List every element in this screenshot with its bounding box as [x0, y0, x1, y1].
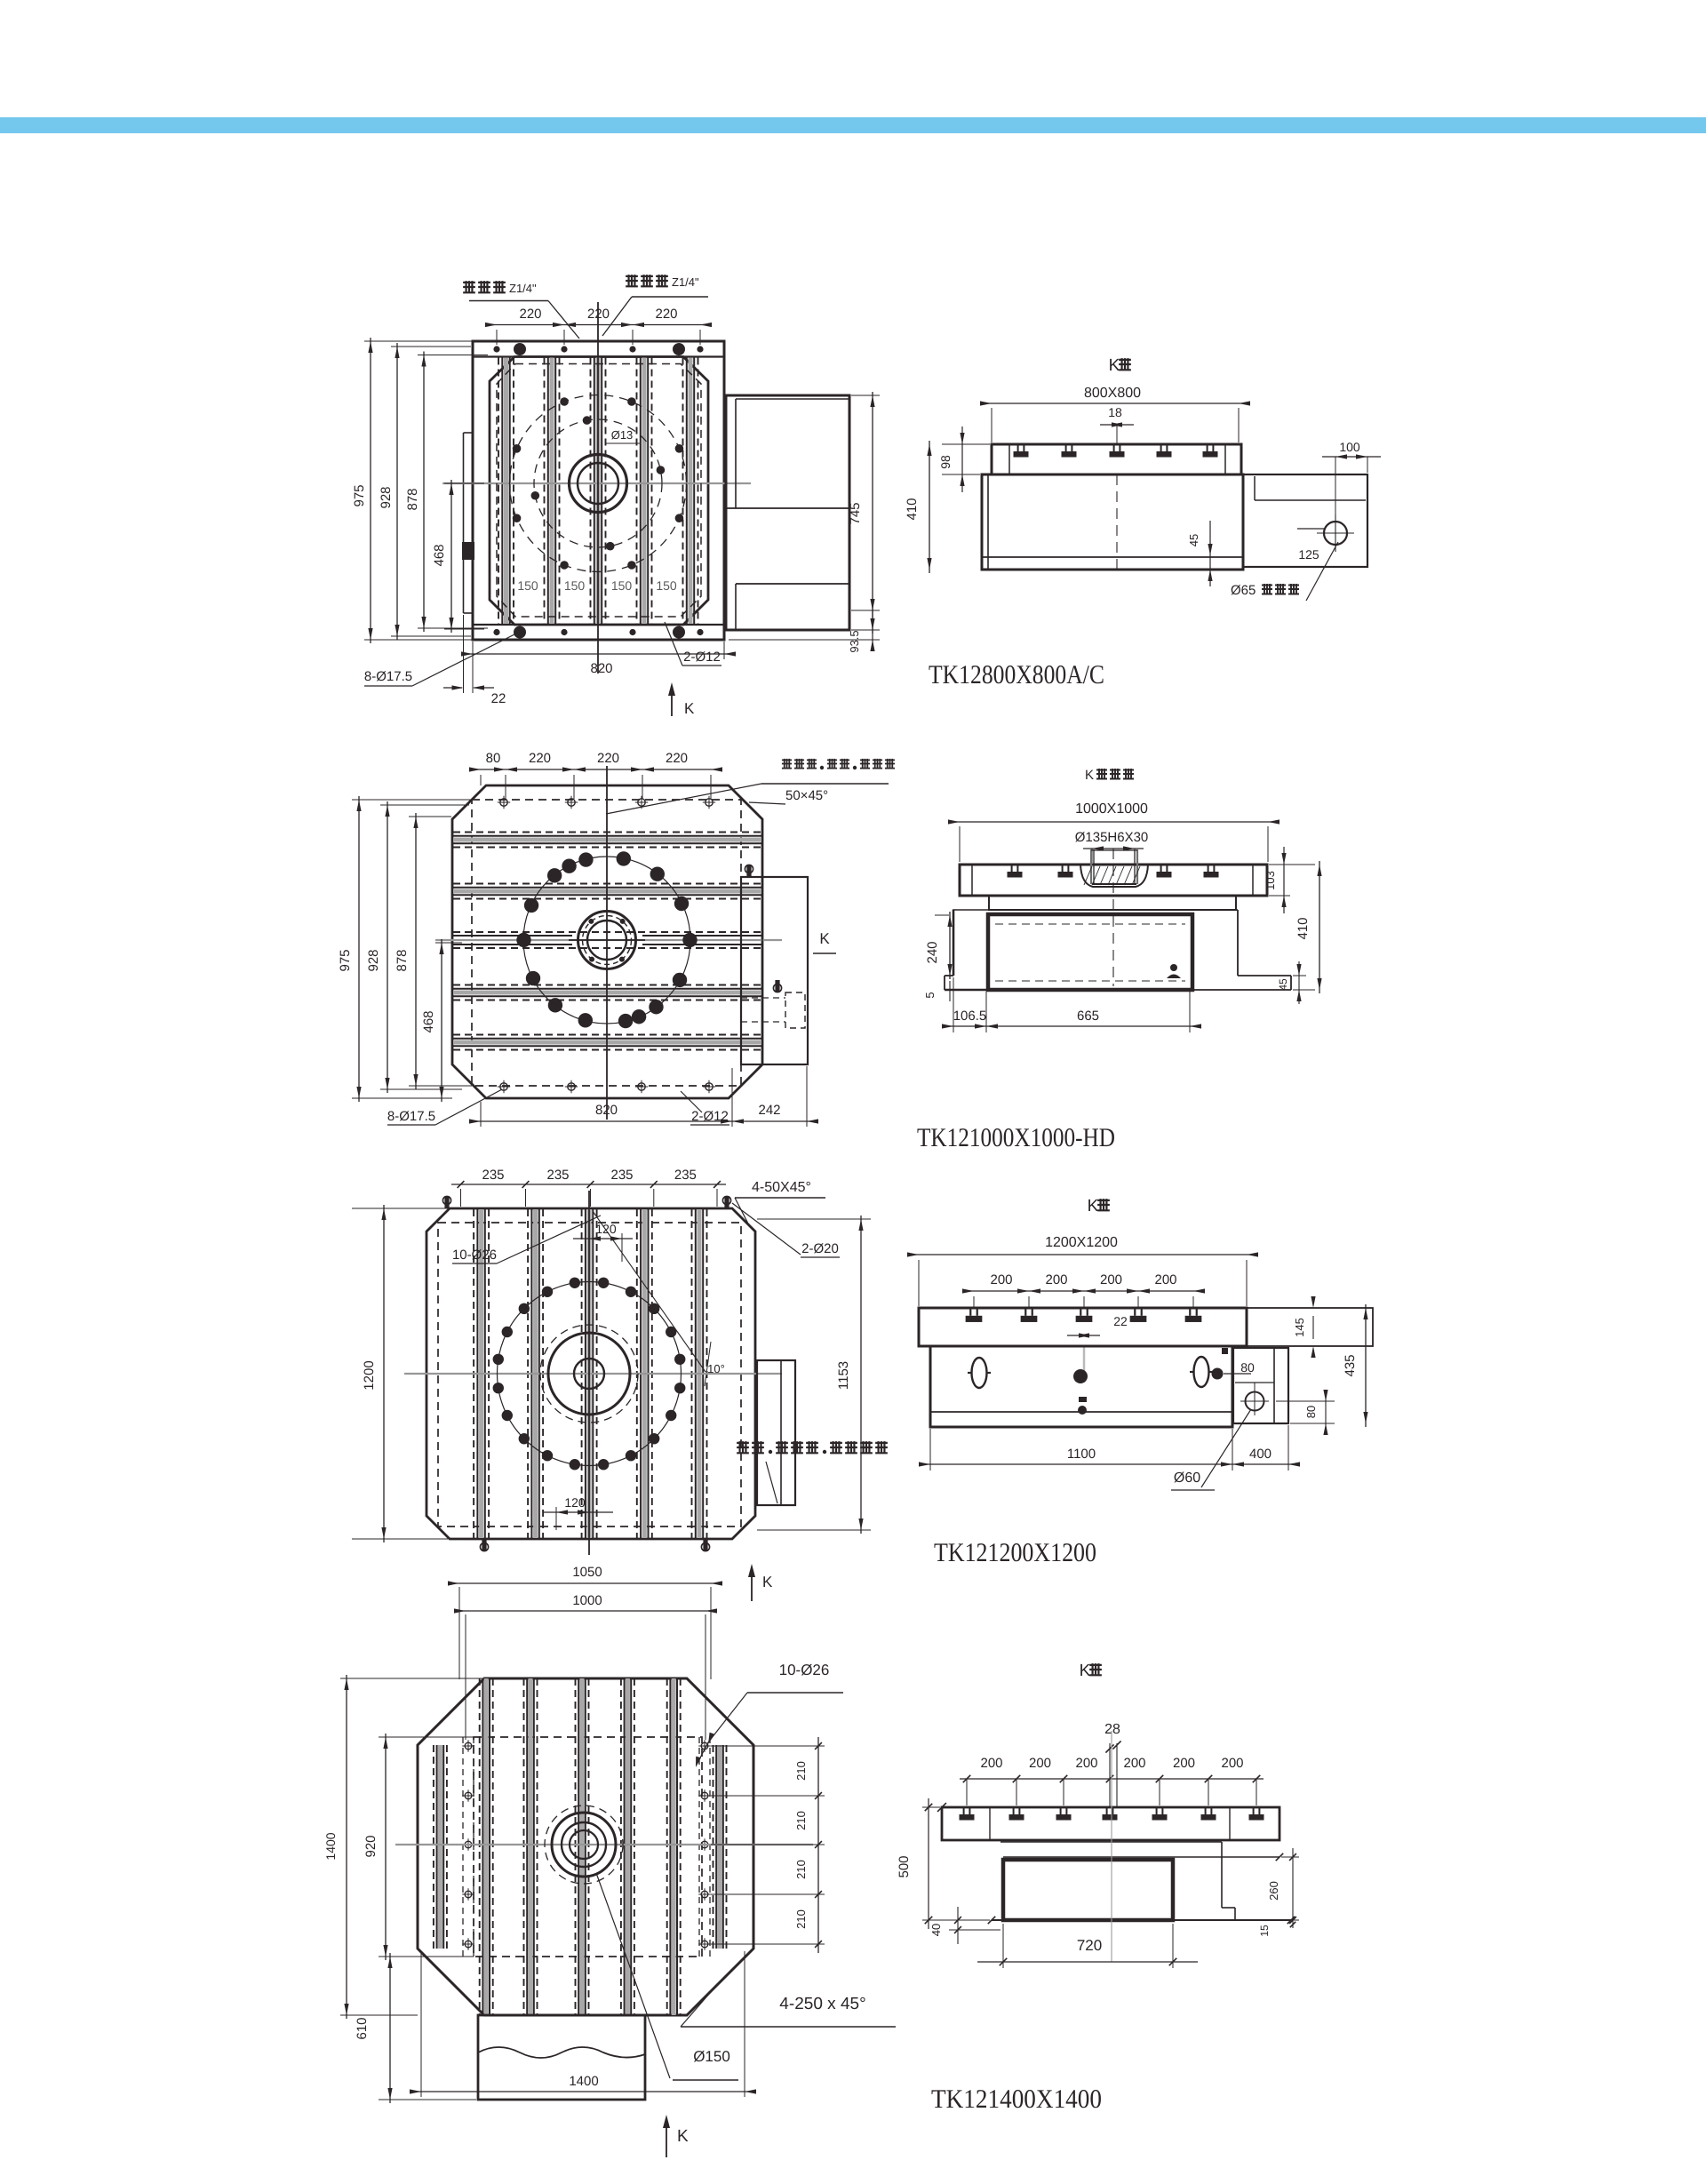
svg-text:K: K — [1085, 768, 1094, 783]
svg-text:200: 200 — [990, 1272, 1012, 1287]
svg-text:Ø135H6X30: Ø135H6X30 — [1075, 830, 1149, 845]
svg-text:Z1/4": Z1/4" — [672, 275, 699, 289]
svg-text:K: K — [762, 1574, 773, 1590]
svg-text:15: 15 — [1258, 1925, 1271, 1937]
svg-text:1000: 1000 — [572, 1593, 602, 1608]
svg-text:TK12800X800A/C: TK12800X800A/C — [929, 660, 1104, 689]
svg-text:Ø65: Ø65 — [1231, 583, 1256, 598]
svg-text:468: 468 — [421, 1010, 436, 1032]
svg-text:28: 28 — [1104, 1722, 1120, 1737]
svg-text:400: 400 — [1249, 1447, 1272, 1462]
svg-text:745: 745 — [848, 502, 863, 524]
svg-text:120: 120 — [564, 1495, 586, 1510]
svg-text:975: 975 — [352, 484, 367, 506]
svg-text:106.5: 106.5 — [953, 1008, 987, 1024]
svg-text:200: 200 — [1154, 1272, 1176, 1287]
svg-text:235: 235 — [546, 1168, 569, 1183]
svg-text:210: 210 — [794, 1761, 808, 1781]
svg-text:200: 200 — [980, 1756, 1002, 1771]
svg-text:K: K — [1109, 356, 1120, 375]
svg-text:720: 720 — [1077, 1937, 1102, 1954]
svg-text:1200X1200: 1200X1200 — [1045, 1235, 1118, 1250]
svg-text:10-Ø26: 10-Ø26 — [452, 1247, 497, 1263]
svg-text:80: 80 — [1240, 1360, 1255, 1375]
svg-text:Ø150: Ø150 — [693, 2048, 730, 2065]
svg-text:260: 260 — [1267, 1881, 1280, 1901]
svg-text:220: 220 — [519, 307, 541, 322]
svg-text:1200: 1200 — [362, 1360, 377, 1390]
svg-text:1400: 1400 — [569, 2074, 598, 2089]
svg-text:210: 210 — [794, 1860, 808, 1879]
svg-text:10-Ø26: 10-Ø26 — [779, 1662, 830, 1678]
svg-text:1000X1000: 1000X1000 — [1075, 801, 1148, 817]
svg-text:1050: 1050 — [572, 1565, 602, 1580]
svg-text:22: 22 — [491, 691, 506, 706]
svg-text:210: 210 — [794, 1909, 808, 1929]
svg-text:TK121400X1400: TK121400X1400 — [931, 2084, 1102, 2114]
svg-text:235: 235 — [482, 1168, 504, 1183]
svg-text:928: 928 — [379, 486, 394, 508]
svg-text:22: 22 — [1113, 1314, 1128, 1328]
svg-text:235: 235 — [610, 1168, 633, 1183]
svg-text:610: 610 — [355, 2017, 370, 2039]
svg-text:45: 45 — [1187, 534, 1200, 546]
svg-text:2-Ø20: 2-Ø20 — [801, 1241, 839, 1256]
svg-text:K: K — [684, 700, 695, 717]
svg-text:K: K — [1088, 1197, 1099, 1216]
svg-text:200: 200 — [1123, 1756, 1145, 1771]
svg-text:435: 435 — [1343, 1354, 1358, 1376]
svg-text:2-Ø12: 2-Ø12 — [683, 650, 721, 665]
svg-text:1400: 1400 — [323, 1832, 338, 1860]
svg-text:103: 103 — [1264, 871, 1277, 890]
svg-text:150: 150 — [611, 578, 633, 593]
svg-text:K: K — [819, 930, 830, 947]
svg-text:8-Ø17.5: 8-Ø17.5 — [364, 669, 412, 684]
svg-text:975: 975 — [338, 949, 353, 971]
svg-text:220: 220 — [655, 307, 677, 322]
svg-text:K: K — [677, 2127, 689, 2146]
svg-text:220: 220 — [666, 751, 688, 766]
svg-text:145: 145 — [1293, 1318, 1306, 1337]
svg-text:410: 410 — [905, 498, 920, 520]
svg-text:100: 100 — [1339, 440, 1360, 454]
svg-text:45: 45 — [1277, 978, 1289, 991]
svg-text:820: 820 — [595, 1103, 618, 1118]
svg-text:200: 200 — [1173, 1756, 1195, 1771]
svg-text:98: 98 — [938, 455, 953, 469]
svg-text:125: 125 — [1298, 547, 1319, 562]
svg-text:1153: 1153 — [836, 1361, 851, 1390]
svg-text:150: 150 — [564, 578, 586, 593]
svg-text:5: 5 — [923, 992, 937, 998]
svg-text:220: 220 — [529, 751, 551, 766]
svg-text:80: 80 — [486, 751, 501, 766]
svg-text:210: 210 — [794, 1811, 808, 1830]
svg-text:242: 242 — [758, 1103, 780, 1118]
svg-text:220: 220 — [597, 751, 619, 766]
svg-text:TK121000X1000-HD: TK121000X1000-HD — [917, 1123, 1115, 1152]
svg-text:80: 80 — [1304, 1406, 1318, 1418]
svg-text:500: 500 — [897, 1855, 912, 1877]
svg-text:93.5: 93.5 — [848, 630, 861, 652]
svg-text:Ø13: Ø13 — [611, 428, 634, 442]
svg-text:820: 820 — [590, 661, 612, 676]
svg-text:235: 235 — [674, 1168, 697, 1183]
svg-text:878: 878 — [395, 949, 410, 971]
svg-text:Z1/4": Z1/4" — [509, 282, 537, 295]
svg-text:200: 200 — [1029, 1756, 1051, 1771]
svg-text:120: 120 — [595, 1222, 617, 1236]
svg-text:150: 150 — [517, 578, 538, 593]
svg-text:4-250 x 45°: 4-250 x 45° — [779, 1995, 865, 2013]
svg-text:240: 240 — [925, 941, 940, 963]
svg-text:665: 665 — [1077, 1008, 1099, 1024]
svg-text:4-50X45°: 4-50X45° — [752, 1180, 811, 1195]
svg-text:50×45°: 50×45° — [785, 788, 828, 803]
svg-text:150: 150 — [656, 578, 677, 593]
svg-text:800X800: 800X800 — [1084, 386, 1141, 401]
svg-text:878: 878 — [405, 488, 420, 510]
svg-text:200: 200 — [1221, 1756, 1243, 1771]
svg-text:220: 220 — [587, 307, 610, 322]
svg-text:200: 200 — [1075, 1756, 1097, 1771]
svg-text:Ø60: Ø60 — [1174, 1471, 1200, 1486]
svg-text:200: 200 — [1045, 1272, 1067, 1287]
svg-text:1100: 1100 — [1067, 1447, 1096, 1462]
svg-text:40: 40 — [929, 1924, 943, 1936]
svg-text:928: 928 — [366, 949, 381, 971]
svg-text:2-Ø12: 2-Ø12 — [691, 1109, 729, 1124]
svg-text:200: 200 — [1100, 1272, 1122, 1287]
svg-text:920: 920 — [363, 1835, 379, 1857]
svg-text:TK121200X1200: TK121200X1200 — [934, 1538, 1096, 1567]
svg-text:410: 410 — [1295, 917, 1311, 939]
svg-text:468: 468 — [432, 544, 447, 566]
svg-text:8-Ø17.5: 8-Ø17.5 — [387, 1109, 435, 1124]
svg-text:18: 18 — [1108, 405, 1122, 419]
svg-text:K: K — [1080, 1662, 1091, 1680]
